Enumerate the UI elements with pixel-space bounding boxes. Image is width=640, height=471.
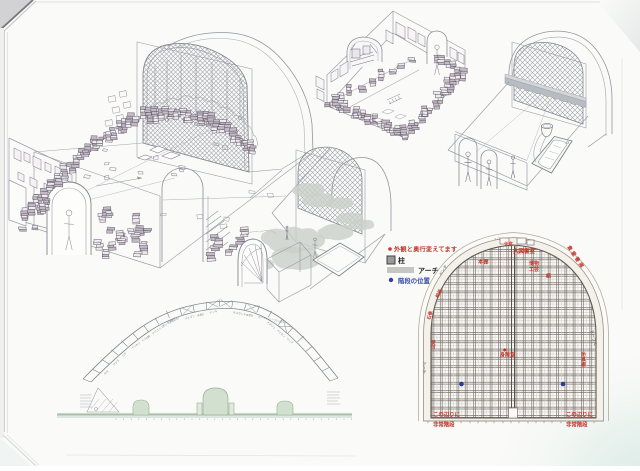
svg-text:博物: 博物 bbox=[529, 260, 539, 267]
svg-text:非常階段: 非常階段 bbox=[433, 421, 455, 429]
svg-text:外観と奥行変えてます: 外観と奥行変えてます bbox=[394, 246, 457, 254]
svg-text:非常階段: 非常階段 bbox=[566, 421, 588, 429]
svg-text:この辺りに: この辺りに bbox=[433, 411, 460, 419]
svg-text:身障室: 身障室 bbox=[500, 352, 515, 359]
svg-text:本棚: 本棚 bbox=[478, 258, 488, 266]
svg-text:大図書室: 大図書室 bbox=[513, 247, 535, 255]
svg-text:柱: 柱 bbox=[398, 256, 405, 265]
svg-text:紙: 紙 bbox=[546, 273, 551, 280]
svg-text:○ □: ○ □ bbox=[494, 237, 500, 241]
svg-text:受付: 受付 bbox=[431, 339, 437, 350]
svg-text:◆: ◆ bbox=[502, 347, 507, 352]
svg-text:階段の位置: 階段の位置 bbox=[398, 276, 431, 285]
svg-text:アーチ: アーチ bbox=[423, 362, 428, 375]
svg-text:この辺りに: この辺りに bbox=[566, 411, 593, 419]
svg-text:天窓: 天窓 bbox=[504, 241, 513, 248]
svg-text:工芸: 工芸 bbox=[529, 266, 539, 273]
svg-text:防具棚: 防具棚 bbox=[581, 351, 587, 368]
